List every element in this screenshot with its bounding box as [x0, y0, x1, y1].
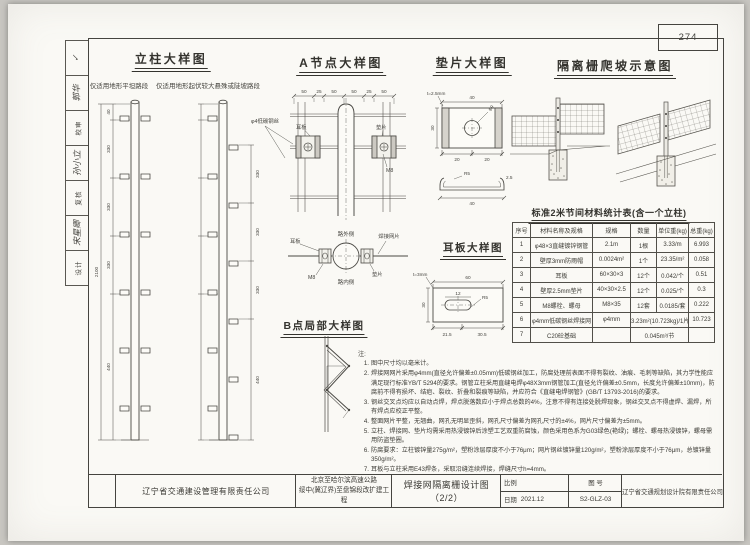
- project-name: 北京至哈尔滨高速公路 绥中(冀辽界)至盘锦段改扩建工程: [295, 475, 392, 507]
- col-header: 单位重(kg): [657, 223, 689, 238]
- label-design: 设计: [65, 251, 89, 286]
- cell: φ4mm: [593, 313, 631, 328]
- notes-block: 注: 1. 图中尺寸均以毫米计。 2. 焊接网网片采用φ4mm(直径允许偏差±0…: [358, 350, 716, 475]
- signature-checker: 孙小立: [65, 146, 89, 181]
- scale-row: 比例: [501, 475, 569, 491]
- label-proofread: 校审: [65, 111, 89, 146]
- cell: 0.51: [689, 268, 715, 283]
- scale-label: 比例: [504, 478, 517, 487]
- table-row: 1 φ48×3直缝镀锌钢管 2.1m 1根 3.33/m 6.993: [513, 238, 715, 253]
- scale-date-cell: 比例 日期 2021.12: [500, 475, 569, 507]
- washer-label: 垫片: [372, 270, 383, 278]
- date-row: 日期 2021.12: [501, 491, 569, 508]
- title-ear-plate: 耳板大样图: [440, 240, 506, 260]
- welded-mesh-label: 焊接网片: [378, 232, 399, 240]
- note-item: 1. 图中尺寸均以毫米计。: [358, 359, 716, 368]
- clamp-plan-left: [319, 249, 331, 263]
- cell: 2.1m: [593, 238, 631, 253]
- cell: 3.33/m: [657, 238, 689, 253]
- table-row: 5 M8螺栓、螺母 M8×35 12套 0.0185/套 0.222: [513, 298, 715, 313]
- note-number: 4.: [358, 417, 371, 426]
- scanned-drawing-sheet: ✓ 郭华 校审 孙小立 复核 宋星卿 设计 274 立柱大样图 仅适用地形平坦路…: [0, 0, 750, 545]
- column-flat: 2100 40 330 330 330 440: [94, 100, 150, 440]
- note-number: 3.: [358, 398, 371, 417]
- notes-label: 注:: [358, 350, 716, 359]
- col-header: 材料名称及规格: [531, 223, 593, 238]
- label-text: 校审: [72, 121, 82, 136]
- cell: 6: [513, 313, 531, 328]
- clamp-right: [372, 136, 396, 158]
- mesh-bend-inner: [324, 350, 346, 411]
- bolt-label: M8: [386, 168, 393, 174]
- label-text: 设计: [72, 261, 82, 276]
- note-item: 5. 立柱、焊接网、垫片均需采用热浸镀锌后涂塑工艺双重防腐蚀，颜色采用色系为G0…: [358, 427, 716, 446]
- cell: φ48×3直缝镀锌钢管: [531, 238, 593, 253]
- column-slope: 330 330 330 440: [198, 100, 260, 440]
- radius-label: R5: [464, 171, 470, 176]
- table-row: 3 耳板 60×30×3 12个 0.042/个 0.51: [513, 268, 715, 283]
- clamp-plan-right: [361, 249, 373, 263]
- signature-strip: ✓ 郭华 校审 孙小立 复核 宋星卿 设计: [65, 40, 87, 286]
- cell: 5: [513, 298, 531, 313]
- dim: 440: [106, 363, 111, 371]
- drawing-title: 焊接网隔离栅设计图（2/2）: [391, 475, 501, 507]
- cell: 耳板: [531, 268, 593, 283]
- cell: 0.0185/套: [657, 298, 689, 313]
- dim: 330: [106, 261, 111, 269]
- cell-merged: 0.045m³/节: [631, 328, 689, 343]
- col-header: 数量: [631, 223, 657, 238]
- signature-text: 宋星卿: [71, 220, 83, 246]
- note-number: 1.: [358, 359, 371, 368]
- note-item: 6. 防腐要求：立柱镀锌量275g/m²，塑粉涂层厚度不小于76μm；网片钢丝镀…: [358, 446, 716, 465]
- dim: 50: [301, 89, 307, 94]
- washer-drawing: t=2.5mm 40 φ9 30 20 20 R5 2.5: [426, 86, 518, 208]
- figure-label-row: 图 号: [569, 475, 622, 491]
- dim: 21.5: [442, 332, 452, 337]
- radius-label: R5: [482, 295, 488, 300]
- note-text: 图中尺寸均以毫米计。: [371, 359, 716, 368]
- signature-text: 郭华: [71, 84, 83, 101]
- cell-merged: 3.23m²(10.723kg)/1片: [631, 313, 689, 328]
- ear-plate-drawing: t=3mm 60 12 R5 30 21.5 30.5: [413, 266, 518, 340]
- col-header: 序号: [513, 223, 531, 238]
- note-number: 5.: [358, 427, 371, 446]
- dim-width: 60: [465, 275, 471, 280]
- climb-sloped: [616, 100, 716, 186]
- cell: 2: [513, 253, 531, 268]
- note-number: 6.: [358, 446, 371, 465]
- washer-section: R5 2.5 40: [438, 171, 513, 206]
- subtitle-flat-terrain: 仅适用地形平坦路段: [90, 80, 149, 90]
- cell: 60×30×3: [593, 268, 631, 283]
- col-header: 规格: [593, 223, 631, 238]
- cell: 0.222: [689, 298, 715, 313]
- cell: 1根: [631, 238, 657, 253]
- cell: 12个: [631, 268, 657, 283]
- project-line1: 北京至哈尔滨高速公路: [311, 476, 377, 486]
- dim: 40: [469, 201, 475, 206]
- column-detail-drawing: 2100 40 330 330 330 440: [93, 90, 318, 466]
- table-row: 2 壁厚3mm防雨帽 0.0024m² 1个 23.35/m² 0.058: [513, 253, 715, 268]
- washer-label: 垫片: [376, 123, 387, 131]
- cell: 壁厚2.5mm垫片: [531, 283, 593, 298]
- dim-height: 30: [421, 302, 426, 308]
- note-text: 防腐要求：立柱镀锌量275g/m²，塑粉涂层厚度不小于76μm；网片钢丝镀锌量1…: [371, 446, 716, 465]
- title-washer: 垫片大样图: [433, 54, 512, 76]
- note-item: 4. 整面网片平整，无翘曲，网孔无明显歪斜，网孔尺寸偏差为网孔尺寸的±4%，网片…: [358, 417, 716, 426]
- road-outer-label: 路外侧: [338, 230, 355, 238]
- cell: M8×35: [593, 298, 631, 313]
- design-company: 辽宁省交通规划设计院有限责任公司: [621, 475, 723, 507]
- cell: 壁厚3mm防雨帽: [531, 253, 593, 268]
- node-a-plan: 路外侧 路内侧 耳板 M8 垫片 焊接网片: [288, 230, 408, 286]
- cell: 12个: [631, 283, 657, 298]
- cell: 0.058: [689, 253, 715, 268]
- signature-text: ✓: [72, 54, 82, 61]
- road-inner-label: 路内侧: [338, 278, 355, 286]
- ear-plate-label: 耳板: [290, 237, 301, 245]
- note-number: 2.: [358, 369, 371, 397]
- table-row: 4 壁厚2.5mm垫片 40×30×2.5 12个 0.025/个 0.3: [513, 283, 715, 298]
- signature-mark: ✓: [65, 40, 89, 76]
- note-item: 2. 焊接网网片采用φ4mm(直径允许偏差±0.05mm)低碳钢丝加工，防腐处理…: [358, 369, 716, 397]
- cell: 40×30×2.5: [593, 283, 631, 298]
- dim: 330: [106, 203, 111, 211]
- cell: 7: [513, 328, 531, 343]
- climb-stepped: [510, 98, 610, 180]
- point-b-drawing: [291, 332, 366, 438]
- post-plan: [333, 243, 359, 269]
- note-text: 立柱、焊接网、垫片均需采用热浸镀锌后涂塑工艺双重防腐蚀，颜色采用色系为G03绿色…: [371, 427, 716, 446]
- owner-company: 辽宁省交通建设管理有限责任公司: [115, 475, 296, 507]
- dim: 50: [351, 89, 357, 94]
- cell: 0.0024m²: [593, 253, 631, 268]
- figure-number-cell: 图 号 S2-GLZ-03: [568, 475, 622, 507]
- dim-height: 30: [430, 125, 435, 131]
- dim: 50: [381, 89, 387, 94]
- title-block: 辽宁省交通建设管理有限责任公司 北京至哈尔滨高速公路 绥中(冀辽界)至盘锦段改扩…: [88, 474, 722, 507]
- note-text: 钢丝交叉点均应以自动点焊，焊点脱落数应小于焊点总数的4%，注意不得有连接处脱焊现…: [371, 398, 716, 417]
- post-tube: [131, 102, 139, 440]
- cell: 3: [513, 268, 531, 283]
- dim: 20: [454, 157, 460, 162]
- cell: M8螺栓、螺母: [531, 298, 593, 313]
- col-header: 总重(kg): [689, 223, 715, 238]
- title-block-spacer: [88, 475, 115, 507]
- bolt-label: M8: [308, 275, 315, 281]
- date-label: 日期: [504, 495, 517, 504]
- dim-total: 2100: [94, 266, 99, 277]
- date-value: 2021.12: [521, 496, 544, 503]
- title-column-detail: 立柱大样图: [132, 50, 211, 72]
- cell: 1: [513, 238, 531, 253]
- cell: C20砼基础: [531, 328, 593, 343]
- dim: 30.5: [477, 332, 487, 337]
- clamp-left: [296, 136, 320, 158]
- cell: 0.042/个: [657, 268, 689, 283]
- cell: φ4mm低碳钢丝焊接网: [531, 313, 593, 328]
- table-row: 6 φ4mm低碳钢丝焊接网 φ4mm 3.23m²(10.723kg)/1片 1…: [513, 313, 715, 328]
- dim: 330: [106, 145, 111, 153]
- post-tube: [219, 102, 227, 440]
- signature-auditor: 郭华: [65, 76, 89, 111]
- cell: 6.993: [689, 238, 715, 253]
- node-a-drawing: 50 25 50 50 25 50: [286, 84, 410, 322]
- dim: 330: [255, 286, 260, 294]
- dim: 440: [255, 376, 260, 384]
- cell: 0.025/个: [657, 283, 689, 298]
- dim: 50: [331, 89, 337, 94]
- dim: 40: [106, 109, 111, 115]
- dim: 330: [255, 228, 260, 236]
- label-text: 复核: [72, 191, 82, 206]
- title-climb: 隔离栅爬坡示意图: [554, 57, 676, 79]
- cell: 0.3: [689, 283, 715, 298]
- dim: 25: [366, 89, 372, 94]
- cell: 10.723: [689, 313, 715, 328]
- ear-plate-label: 耳板: [296, 123, 307, 131]
- slot-dim: 12: [455, 291, 461, 296]
- figure-number: S2-GLZ-03: [580, 496, 612, 503]
- title-node-a: A节点大样图: [296, 54, 386, 76]
- cell: 23.35/m²: [657, 253, 689, 268]
- note-item: 3. 钢丝交叉点均应以自动点焊，焊点脱落数应小于焊点总数的4%，注意不得有连接处…: [358, 398, 716, 417]
- thickness-label: t=2.5mm: [427, 91, 445, 96]
- material-table: 序号 材料名称及规格 规格 数量 单位重(kg) 总重(kg) 1 φ48×3直…: [512, 222, 715, 343]
- climb-schematic-drawing: [510, 88, 718, 198]
- dim: 330: [255, 170, 260, 178]
- dim: 20: [484, 157, 490, 162]
- figure-value-row: S2-GLZ-03: [569, 491, 622, 508]
- signature-text: 孙小立: [71, 150, 83, 176]
- node-a-elevation: 50 25 50 50 25 50: [290, 89, 406, 220]
- table-row: 7 C20砼基础 0.045m³/节: [513, 328, 715, 343]
- note-text: 整面网片平整，无翘曲，网孔无明显歪斜，网孔尺寸偏差为网孔尺寸的±4%，网片尺寸偏…: [371, 417, 716, 426]
- cell: 4: [513, 283, 531, 298]
- signature-designer: 宋星卿: [65, 216, 89, 251]
- dim: 25: [316, 89, 322, 94]
- dim-width: 40: [469, 95, 475, 100]
- figure-label: 图 号: [588, 478, 603, 487]
- cell: [593, 328, 631, 343]
- mesh-bend-outer: [327, 346, 349, 410]
- label-review: 复核: [65, 181, 89, 216]
- cell: 12套: [631, 298, 657, 313]
- project-line2: 绥中(冀辽界)至盘锦段改扩建工程: [296, 486, 392, 506]
- subtitle-slope-terrain: 仅适用地形起伏较大悬殊或陡坡路段: [156, 80, 260, 90]
- cell: 1个: [631, 253, 657, 268]
- table-header-row: 序号 材料名称及规格 规格 数量 单位重(kg) 总重(kg): [513, 223, 715, 238]
- thickness-label: t=3mm: [413, 272, 428, 277]
- paper: ✓ 郭华 校审 孙小立 复核 宋星卿 设计 274 立柱大样图 仅适用地形平坦路…: [8, 4, 744, 541]
- note-text: 焊接网网片采用φ4mm(直径允许偏差±0.05mm)低碳钢丝加工，防腐处理前表面…: [371, 369, 716, 397]
- cell: [689, 328, 715, 343]
